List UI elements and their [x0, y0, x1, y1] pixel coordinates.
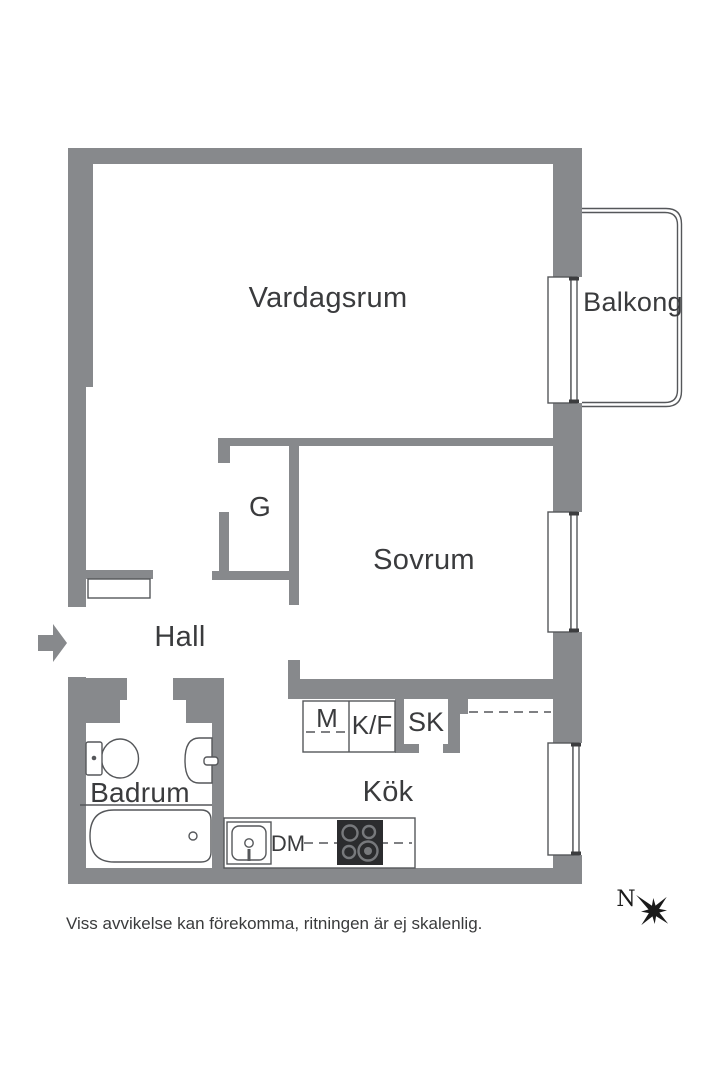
burner [363, 826, 375, 838]
wall-left-middle [68, 387, 86, 607]
wall-top [68, 148, 582, 164]
wall-hall-stub [86, 570, 153, 579]
window-cap [569, 400, 579, 404]
room-label-garderob: G [249, 491, 271, 522]
wall-closet-bottom [212, 571, 290, 580]
window-pane [571, 512, 577, 632]
toilet-bowl [102, 739, 139, 778]
wall-right-mid2 [553, 632, 582, 743]
kitchen-window [548, 743, 581, 855]
wall-livingroom-bedroom [218, 438, 553, 446]
wall-left-upper [68, 164, 93, 387]
floor-plan: Vardagsrum Balkong Sovrum G Hall Badrum … [0, 0, 720, 1080]
appliance-label-m: M [316, 703, 338, 733]
window-cap [569, 512, 579, 516]
stove-top [337, 820, 383, 865]
balcony-door-window [548, 277, 579, 403]
wall-bathroom-pillar-right-lower [186, 700, 224, 723]
disclaimer-text: Viss avvikelse kan förekomma, ritningen … [66, 914, 482, 933]
wall-bathroom-kitchen [212, 723, 224, 868]
window-cap [569, 277, 579, 281]
window-sill [548, 743, 573, 855]
burner-center [364, 847, 372, 855]
wall-kitchen-top [288, 679, 553, 699]
wall-bathroom-pillar-left-lower [68, 700, 120, 723]
hall-wardrobe [88, 579, 150, 598]
room-label-kok: Kök [363, 776, 414, 808]
room-label-balkong: Balkong [583, 287, 683, 317]
appliance-label-dm: DM [271, 831, 305, 856]
window-cap [569, 629, 579, 633]
kitchen-faucet-stem [248, 849, 251, 861]
floor-plan-page: Vardagsrum Balkong Sovrum G Hall Badrum … [0, 0, 720, 1080]
room-label-badrum: Badrum [90, 777, 190, 808]
wall-bottom [68, 868, 582, 884]
kitchen-faucet [245, 839, 253, 847]
wall-bathroom-pillar-right-upper [173, 678, 224, 700]
kitchen-counter [224, 818, 415, 868]
wall-wardrobe-step [460, 699, 468, 714]
window-sill [548, 512, 571, 632]
room-label-hall: Hall [154, 621, 205, 653]
stove [337, 820, 383, 865]
wall-closet-stub-top [218, 446, 230, 463]
wall-closet-bedroom [289, 446, 299, 605]
wall-bathroom-pillar-left-upper [68, 678, 127, 700]
room-label-sovrum: Sovrum [373, 544, 475, 576]
window-pane [571, 277, 577, 403]
wall-bedroom-door-stub [288, 660, 300, 679]
burner [343, 846, 355, 858]
window-cap [571, 852, 581, 856]
window-cap [571, 743, 581, 747]
room-label-vardagsrum: Vardagsrum [249, 282, 408, 314]
wall-right-bottom [553, 855, 582, 884]
compass-north-label: N [616, 887, 635, 912]
appliance-label-sk: SK [408, 707, 444, 737]
wall-right-mid1 [553, 403, 582, 512]
bedroom-window [548, 512, 579, 632]
wall-right-top [553, 164, 582, 277]
appliance-label-kf: K/F [352, 710, 392, 740]
wall-sk-left-foot [395, 744, 419, 753]
compass: N [616, 881, 680, 938]
wall-closet-left [219, 512, 229, 571]
bathtub [90, 810, 211, 862]
window-pane [573, 743, 579, 855]
entrance-arrow-icon [38, 624, 67, 662]
bathroom-sink-tap [204, 757, 218, 765]
outer-walls [68, 148, 582, 884]
wall-sk-right-foot [443, 744, 460, 753]
toilet-flush-dot [92, 756, 97, 761]
window-sill [548, 277, 571, 403]
burner [343, 826, 358, 841]
